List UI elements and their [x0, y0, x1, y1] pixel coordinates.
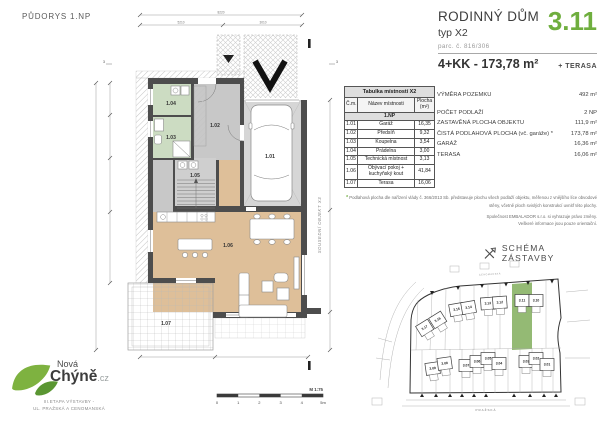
svg-text:3.07: 3.07	[463, 363, 470, 367]
svg-text:5210: 5210	[177, 21, 184, 25]
header-divider	[438, 53, 597, 54]
dining-table	[250, 214, 294, 244]
site-houses: 3.173.163.153.143.133.123.113.103.093.08…	[416, 295, 554, 382]
svg-text:3.11: 3.11	[519, 298, 526, 302]
info-row: ZASTAVĚNÁ PLOCHA OBJEKTU111,9 m²	[437, 120, 597, 126]
col-header: Název místnosti	[358, 98, 415, 113]
scale-bar: M 1:75 0 1 2 3 4 5m	[216, 387, 327, 405]
svg-text:3: 3	[336, 60, 338, 64]
table-row: 1.05Technická místnost3,13	[345, 156, 435, 165]
street-label-bottom: PRAŽSKÁ	[475, 407, 496, 412]
table-row: 1.07Terasa16,06	[345, 179, 435, 188]
table-row: 1.03Koupelna3,54	[345, 138, 435, 147]
type-label: typ X2	[438, 27, 539, 39]
col-header: Plocha (m²)	[415, 98, 435, 113]
house-plot: 3.14	[461, 300, 478, 320]
sheet-header: RODINNÝ DŮM typ X2 3.11 parc. č. 816/306…	[438, 10, 597, 71]
highlighted-plot	[512, 283, 532, 351]
svg-text:1.03: 1.03	[166, 135, 176, 141]
svg-text:3.10: 3.10	[533, 298, 540, 302]
hall-closet	[194, 86, 206, 146]
svg-text:1.04: 1.04	[166, 101, 176, 107]
svg-text:3.06: 3.06	[474, 359, 481, 363]
svg-text:3.12: 3.12	[496, 300, 503, 304]
svg-text:8220: 8220	[217, 11, 224, 15]
tv-board	[294, 257, 299, 289]
room-table: Tabulka místností X2 Č.m. Název místnost…	[344, 86, 435, 188]
info-row: TERASA16,06 m²	[437, 152, 597, 158]
site-context	[372, 261, 590, 405]
svg-text:5m: 5m	[320, 400, 326, 405]
asterisk: *	[346, 195, 348, 201]
property-info: VÝMĚRA POZEMKU492 m² POČET PODLAŽÍ2 NP Z…	[437, 92, 597, 162]
layout-summary: 4+KK - 173,78 m²	[438, 57, 538, 71]
site-plan-svg: PRAŽSKÁ CENOMANSKÁ 3.173.163.153.143.133…	[360, 258, 595, 418]
info-row: ČISTÁ PODLAHOVÁ PLOCHA (vč. garáže) *173…	[437, 131, 597, 137]
svg-text:1.07: 1.07	[161, 321, 171, 327]
house-plot: 3.12	[492, 296, 507, 315]
room-terrace	[128, 283, 213, 350]
svg-text:3.04: 3.04	[496, 361, 503, 365]
table-row: 1.04Prádelna3,00	[345, 147, 435, 156]
disclaimer: * Podlahová plocha dle nařízení vlády č.…	[340, 195, 597, 233]
car-icon	[249, 105, 294, 201]
right-panel: RODINNÝ DŮM typ X2 3.11 parc. č. 816/306…	[340, 0, 600, 422]
svg-text:1.01: 1.01	[265, 154, 275, 160]
brand-suffix: .cz	[97, 373, 109, 383]
floor-section-row: 1.NP	[345, 112, 435, 121]
corridor	[153, 160, 173, 212]
svg-text:1.05: 1.05	[190, 173, 200, 179]
svg-text:1: 1	[237, 400, 240, 405]
svg-text:3.01: 3.01	[544, 362, 551, 366]
armchair	[274, 273, 288, 282]
svg-text:3010: 3010	[259, 21, 266, 25]
svg-text:3: 3	[279, 400, 282, 405]
svg-text:0: 0	[216, 400, 219, 405]
svg-text:3.03: 3.03	[523, 359, 530, 363]
side-label: SOUSEDNÍ OBJEKT X3	[317, 197, 322, 253]
info-row: VÝMĚRA POZEMKU492 m²	[437, 92, 597, 98]
svg-text:3: 3	[103, 60, 105, 64]
svg-text:M 1:75: M 1:75	[309, 387, 323, 392]
streets: PRAŽSKÁ CENOMANSKÁ	[402, 272, 570, 412]
table-row: 1.06Obývací pokoj + kuchyňský kout41,84	[345, 165, 435, 180]
room-table-title: Tabulka místností X2	[345, 87, 435, 98]
svg-text:1.02: 1.02	[210, 123, 220, 129]
table-row: 1.01Garáž16,35	[345, 121, 435, 130]
kitchen-island	[178, 239, 212, 250]
svg-text:3.13: 3.13	[484, 301, 491, 305]
logo: Nová Chýně.cz III.ETAPA VÝSTAVBY - UL. P…	[10, 356, 128, 412]
sheet: PŮDORYS 1.NP 8220 5210 3010	[0, 0, 600, 422]
svg-text:3.02: 3.02	[533, 356, 540, 360]
page-title: RODINNÝ DŮM	[438, 10, 539, 25]
parcel-number: parc. č. 816/306	[438, 43, 597, 50]
svg-text:3.05: 3.05	[485, 356, 492, 360]
col-header: Č.m.	[345, 98, 358, 113]
svg-text:1.06: 1.06	[223, 243, 233, 249]
svg-text:2: 2	[258, 400, 261, 405]
floor-plan-svg: 8220 5210 3010 3 3	[78, 5, 348, 415]
layout-suffix: + TERASA	[558, 63, 597, 71]
dimension-lines-top: 8220 5210 3010	[138, 11, 304, 27]
svg-text:4: 4	[301, 400, 304, 405]
logo-tagline: III.ETAPA VÝSTAVBY - UL. PRAŽSKÁ A CENOM…	[10, 399, 128, 412]
brand-main: Chýně.cz	[50, 368, 109, 386]
info-row: POČET PODLAŽÍ2 NP	[437, 110, 597, 116]
unit-number-badge: 3.11	[548, 10, 597, 33]
street-label-top: CENOMANSKÁ	[479, 272, 501, 276]
table-row: 1.02Předsíň9,32	[345, 130, 435, 139]
corridor-strip	[218, 160, 240, 206]
info-row: GARÁŽ16,36 m²	[437, 141, 597, 147]
house-plot: 3.04	[492, 358, 506, 376]
